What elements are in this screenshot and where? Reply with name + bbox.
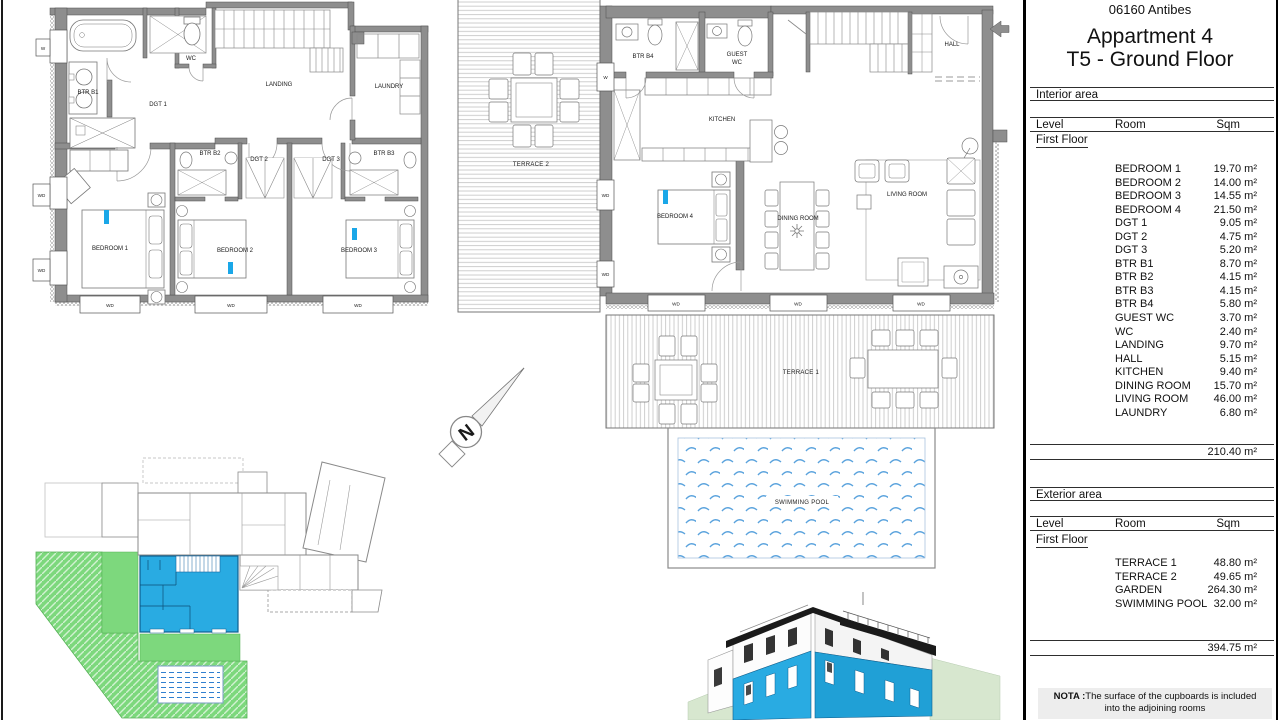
interior-total: 210.40 m²: [1207, 446, 1257, 458]
north-compass: N: [439, 368, 524, 467]
level-label-interior: First Floor: [1036, 134, 1088, 148]
room-label-btr-b4: BTR B4: [632, 54, 654, 60]
plan-living-wing: TERRACE 2 BTR B4 GUEST WC KITCHEN HALL B…: [458, 0, 1009, 568]
table-row: DINING ROOM15.70 m²: [1036, 380, 1257, 394]
area-summary-panel: 06160 Antibes Appartment 4 T5 - Ground F…: [1023, 0, 1280, 720]
window-label-wd: WD: [106, 303, 114, 308]
table-row: BTR B24.15 m²: [1036, 271, 1257, 285]
room-label-dgt2: DGT 2: [250, 157, 268, 163]
kitchen-units: [614, 78, 788, 162]
laundry-units: [357, 34, 420, 114]
window-label-wd: WD: [602, 193, 610, 198]
col-level: Level: [1036, 518, 1064, 530]
room-label-bedroom3: BEDROOM 3: [341, 248, 378, 254]
sheet-title-line2: T5 - Ground Floor: [1026, 48, 1274, 72]
table-row: DGT 19.05 m²: [1036, 217, 1257, 231]
sheet-title-line1: Appartment 4: [1026, 25, 1274, 49]
table-row: LIVING ROOM46.00 m²: [1036, 393, 1257, 407]
col-level: Level: [1036, 119, 1064, 131]
rule: [1030, 640, 1274, 641]
bed-bedroom1: [55, 150, 165, 304]
window-label-wd: WD: [38, 268, 46, 273]
window-label-wd: WD: [602, 272, 610, 277]
terrace2-area: [458, 0, 600, 312]
sheet-right-border: [1276, 0, 1278, 720]
location-text: 06160 Antibes: [1026, 2, 1274, 17]
table-row: SWIMMING POOL32.00 m²: [1036, 598, 1257, 612]
site-pool: [158, 666, 223, 703]
col-room: Room: [1115, 518, 1146, 530]
floorplan-sheet: BTR B1 WC LANDING LAUNDRY DGT 1 BTR B2 D…: [0, 0, 1280, 720]
drawing-area: BTR B1 WC LANDING LAUNDRY DGT 1 BTR B2 D…: [0, 0, 1030, 720]
col-sqm: Sqm: [1216, 518, 1240, 530]
room-label-terrace1: TERRACE 1: [783, 370, 820, 376]
room-label-btr-b3: BTR B3: [373, 151, 395, 157]
table-row: BEDROOM 421.50 m²: [1036, 204, 1257, 218]
section-exterior-area: Exterior area: [1036, 489, 1102, 501]
rule: [1030, 530, 1274, 531]
wc-toilet: [184, 17, 200, 45]
window-label-w: W: [603, 75, 608, 80]
room-label-guest-wc-2: WC: [732, 60, 743, 66]
room-label-guest-wc-1: GUEST: [727, 52, 748, 58]
rule: [1030, 117, 1274, 118]
table-row: DGT 24.75 m²: [1036, 231, 1257, 245]
room-label-kitchen: KITCHEN: [709, 117, 735, 123]
rule: [1030, 100, 1274, 101]
table-row: HALL5.15 m²: [1036, 353, 1257, 367]
table-row: BEDROOM 314.55 m²: [1036, 190, 1257, 204]
room-label-wc: WC: [186, 56, 197, 62]
room-label-btr-b2: BTR B2: [199, 151, 221, 157]
room-label-landing: LANDING: [266, 82, 293, 88]
table-row: BTR B18.70 m²: [1036, 258, 1257, 272]
room-label-dgt1: DGT 1: [149, 102, 167, 108]
interior-room-table: BEDROOM 119.70 m² BEDROOM 214.00 m² BEDR…: [1036, 163, 1257, 420]
room-label-bedroom4: BEDROOM 4: [657, 214, 694, 220]
rule: [1030, 655, 1274, 656]
table-row: BEDROOM 119.70 m²: [1036, 163, 1257, 177]
table-row: LAUNDRY6.80 m²: [1036, 407, 1257, 421]
living-furniture: [855, 138, 980, 288]
table-row: KITCHEN9.40 m²: [1036, 366, 1257, 380]
window-label-wd: WD: [354, 303, 362, 308]
level-label-exterior: First Floor: [1036, 534, 1088, 548]
table-row: GUEST WC3.70 m²: [1036, 312, 1257, 326]
building-3d-view: [688, 592, 1000, 720]
nota-footnote: NOTA :The surface of the cupboards is in…: [1038, 688, 1272, 719]
exterior-room-table: TERRACE 148.80 m² TERRACE 249.65 m² GARD…: [1036, 557, 1257, 612]
window-label-wd: WD: [917, 302, 925, 307]
section-interior-area: Interior area: [1036, 89, 1098, 101]
room-label-hall: HALL: [944, 42, 960, 48]
room-label-dining: DINING ROOM: [777, 216, 818, 222]
table-row: BTR B34.15 m²: [1036, 285, 1257, 299]
table-row: TERRACE 249.65 m²: [1036, 571, 1257, 585]
table-row: BTR B45.80 m²: [1036, 298, 1257, 312]
table-row: LANDING9.70 m²: [1036, 339, 1257, 353]
nota-text: The surface of the cupboards is included…: [1085, 691, 1256, 714]
rule: [1030, 516, 1274, 517]
col-room: Room: [1115, 119, 1146, 131]
window-label-wd: WD: [227, 303, 235, 308]
room-label-pool: SWIMMING POOL: [775, 500, 830, 506]
window-label-wd: WD: [38, 193, 46, 198]
bathroom-b1-fixtures: [69, 20, 136, 148]
table-header-exterior: Level Room Sqm: [1036, 518, 1254, 530]
rule: [1030, 500, 1274, 501]
hall-living-separator: [935, 77, 980, 81]
table-row: BEDROOM 214.00 m²: [1036, 177, 1257, 191]
rule: [1030, 459, 1274, 460]
garden-solid: [140, 634, 240, 661]
table-row: DGT 35.20 m²: [1036, 244, 1257, 258]
rule: [1030, 444, 1274, 445]
room-label-bedroom1: BEDROOM 1: [92, 246, 129, 252]
nota-label: NOTA :: [1054, 691, 1086, 702]
col-sqm: Sqm: [1216, 119, 1240, 131]
table-row: TERRACE 148.80 m²: [1036, 557, 1257, 571]
room-label-dgt3: DGT 3: [322, 157, 340, 163]
room-label-btr-b1: BTR B1: [77, 90, 99, 96]
table-row: GARDEN264.30 m²: [1036, 584, 1257, 598]
room-label-living: LIVING ROOM: [887, 192, 927, 198]
table-header-interior: Level Room Sqm: [1036, 119, 1254, 131]
room-label-terrace2: TERRACE 2: [513, 162, 550, 168]
window-label-wd: WD: [672, 302, 680, 307]
room-label-laundry: LAUNDRY: [375, 84, 404, 90]
swimming-pool: [668, 428, 935, 568]
window-label-wd: WD: [794, 302, 802, 307]
garden-solid: [102, 552, 138, 633]
highlighted-unit: [140, 556, 238, 633]
dining-set: [765, 182, 829, 270]
room-label-bedroom2: BEDROOM 2: [217, 248, 254, 254]
exterior-total: 394.75 m²: [1207, 642, 1257, 654]
window-label-w: W: [41, 46, 46, 51]
plan-bedrooms-wing: BTR B1 WC LANDING LAUNDRY DGT 1 BTR B2 D…: [33, 2, 428, 313]
stairs-landing: [215, 10, 343, 72]
table-row: WC2.40 m²: [1036, 326, 1257, 340]
site-plan: [36, 458, 385, 718]
rule: [1030, 131, 1274, 132]
windows: [597, 63, 950, 311]
